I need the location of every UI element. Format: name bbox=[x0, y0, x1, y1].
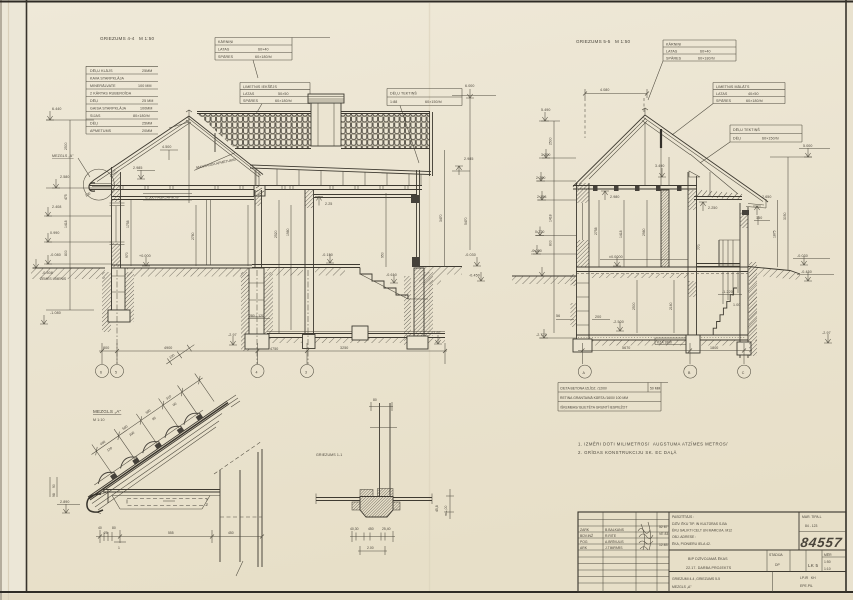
svg-text:2.980: 2.980 bbox=[610, 195, 620, 199]
svg-text:ĻIMETNIS MĀLĀTS: ĻIMETNIS MĀLĀTS bbox=[716, 85, 750, 89]
svg-text:M 1:10: M 1:10 bbox=[93, 418, 105, 422]
svg-text:2.250: 2.250 bbox=[708, 206, 718, 210]
svg-text:SPĀRES: SPĀRES bbox=[218, 55, 234, 59]
svg-text:4.500: 4.500 bbox=[162, 145, 172, 149]
svg-text:KĀRNIŅI: KĀRNIŅI bbox=[218, 40, 233, 44]
svg-text:-0.080: -0.080 bbox=[531, 249, 542, 253]
svg-text:450: 450 bbox=[368, 527, 374, 531]
svg-text:MEZGLS „A”: MEZGLS „A” bbox=[93, 409, 122, 414]
svg-text:MAR. TIPA.L: MAR. TIPA.L bbox=[802, 515, 822, 519]
svg-text:DP: DP bbox=[775, 563, 780, 567]
svg-text:800: 800 bbox=[103, 346, 109, 350]
svg-text:60×180/h/: 60×180/h/ bbox=[275, 99, 292, 103]
svg-text:60×180/h/: 60×180/h/ bbox=[698, 56, 715, 60]
svg-text:DZĪV. ĒKU TIP. IN KULTŪRAS S-B: DZĪV. ĒKU TIP. IN KULTŪRAS S-BA bbox=[672, 522, 728, 526]
svg-text:5.000: 5.000 bbox=[803, 144, 813, 148]
svg-text:84557: 84557 bbox=[800, 535, 844, 550]
svg-text:2.650: 2.650 bbox=[762, 195, 772, 199]
svg-text:SPĀRES: SPĀRES bbox=[716, 99, 732, 103]
svg-text:-0.450: -0.450 bbox=[469, 274, 480, 278]
svg-text:80×180/h/: 80×180/h/ bbox=[133, 114, 150, 118]
svg-text:2.580: 2.580 bbox=[60, 175, 70, 179]
svg-text:DĒĻU TEKTIŅŠ: DĒĻU TEKTIŅŠ bbox=[733, 127, 760, 132]
svg-text:BŪV.INŽ: BŪV.INŽ bbox=[580, 533, 593, 538]
svg-text:4900: 4900 bbox=[164, 346, 172, 350]
svg-text:SIJAS: SIJAS bbox=[90, 114, 101, 118]
svg-text:LATAS: LATAS bbox=[218, 48, 230, 52]
svg-text:-1.080: -1.080 bbox=[50, 311, 61, 315]
svg-text:60×150/h/: 60×150/h/ bbox=[762, 137, 779, 141]
svg-text:-2.97: -2.97 bbox=[432, 331, 441, 335]
svg-text:1980: 1980 bbox=[286, 228, 290, 236]
svg-text:20MM: 20MM bbox=[142, 129, 152, 133]
svg-text:2.00: 2.00 bbox=[367, 546, 374, 550]
svg-text:25: 25 bbox=[104, 531, 108, 535]
svg-text:2 KĀRTAS RUBEROĪDA: 2 KĀRTAS RUBEROĪDA bbox=[90, 92, 132, 96]
svg-text:555: 555 bbox=[168, 531, 174, 535]
svg-text:LK 5: LK 5 bbox=[808, 563, 818, 568]
svg-text:STADIJA: STADIJA bbox=[769, 553, 783, 557]
svg-text:100 MM: 100 MM bbox=[138, 84, 152, 88]
svg-text:2. GRĪDAS KONSTRUKCIJU SK. E: 2. GRĪDAS KONSTRUKCIJU SK. EC DAĻĀ bbox=[578, 450, 677, 455]
svg-text:DĒĻU TEKTIŅŠ: DĒĻU TEKTIŅŠ bbox=[390, 91, 417, 96]
svg-text:EPE.PIL: EPE.PIL bbox=[800, 584, 813, 588]
svg-text:OBJ. ADRESE :: OBJ. ADRESE : bbox=[672, 535, 696, 539]
svg-text:2520: 2520 bbox=[274, 230, 278, 238]
svg-text:2500: 2500 bbox=[549, 137, 553, 145]
svg-text:1:10: 1:10 bbox=[824, 567, 831, 571]
svg-text:3250: 3250 bbox=[340, 346, 348, 350]
svg-text:3.490: 3.490 bbox=[655, 164, 665, 168]
svg-text:80: 80 bbox=[373, 398, 377, 402]
svg-text:1. IZMĒRI DOTI MILIMETROS/ A: 1. IZMĒRI DOTI MILIMETROS/ AUGSTUMA ATZĪ… bbox=[578, 442, 728, 447]
svg-text:-0.450: -0.450 bbox=[801, 270, 812, 274]
svg-text:6: 6 bbox=[100, 370, 102, 374]
svg-text:2.890: 2.890 bbox=[60, 500, 70, 504]
svg-text:A.BRĪVULIS: A.BRĪVULIS bbox=[605, 540, 624, 544]
svg-text:2.408: 2.408 bbox=[52, 205, 62, 209]
svg-text:LATAS: LATAS bbox=[666, 49, 678, 53]
svg-text:MEZGLS „A”: MEZGLS „A” bbox=[672, 585, 691, 589]
svg-text:1: 1 bbox=[118, 546, 120, 550]
svg-text:m/1,00: m/1,00 bbox=[444, 506, 448, 516]
svg-text:-2.97: -2.97 bbox=[822, 331, 831, 335]
svg-text:LP.IR KH: LP.IR KH bbox=[800, 576, 816, 580]
svg-text:4: 4 bbox=[256, 370, 258, 374]
svg-text:KAVA STARPKLĀJA: KAVA STARPKLĀJA bbox=[90, 77, 125, 81]
svg-text:MINERĀLVATE: MINERĀLVATE bbox=[90, 84, 116, 88]
svg-text:2980: 2980 bbox=[642, 228, 646, 236]
svg-text:LATAS: LATAS bbox=[243, 92, 255, 96]
svg-text:DĒĻI: DĒĻI bbox=[90, 122, 98, 126]
svg-text:ZEMES LĪMENIS: ZEMES LĪMENIS bbox=[40, 277, 67, 281]
svg-text:800: 800 bbox=[549, 240, 553, 246]
svg-text:SPĀRES: SPĀRES bbox=[666, 56, 682, 60]
svg-text:ĻIMETNIS IEKŠĒJS: ĻIMETNIS IEKŠĒJS bbox=[243, 84, 277, 89]
svg-text:2500: 2500 bbox=[632, 302, 636, 310]
svg-text:MĒR: MĒR bbox=[824, 553, 832, 557]
svg-text:5470: 5470 bbox=[464, 217, 468, 225]
svg-text:280 J 120: 280 J 120 bbox=[249, 314, 264, 318]
svg-text:50×50: 50×50 bbox=[278, 92, 289, 96]
svg-text:-0.080: -0.080 bbox=[50, 253, 61, 257]
svg-text:-0.030: -0.030 bbox=[465, 253, 476, 257]
svg-text:40,30: 40,30 bbox=[350, 527, 359, 531]
svg-text:GRIEZUMS 1-1: GRIEZUMS 1-1 bbox=[316, 453, 342, 457]
svg-text:1800: 1800 bbox=[710, 346, 718, 350]
svg-text:60×180/h/: 60×180/h/ bbox=[746, 99, 763, 103]
svg-text:52 87: 52 87 bbox=[659, 525, 668, 529]
svg-text:200: 200 bbox=[595, 315, 601, 319]
svg-text:J.TIMPARS: J.TIMPARS bbox=[605, 546, 623, 550]
svg-text:ĒKU SALIKTI CELT UN MARCIJA. M: ĒKU SALIKTI CELT UN MARCIJA. M12 bbox=[672, 529, 732, 533]
svg-text:KZA 1800: KZA 1800 bbox=[657, 340, 672, 344]
svg-text:475: 475 bbox=[64, 194, 68, 200]
svg-text:5: 5 bbox=[115, 370, 117, 374]
svg-text:45,8: 45,8 bbox=[435, 505, 439, 512]
svg-text:GRIEZUMI 4-4 ,GRIEZUMS 5-5: GRIEZUMI 4-4 ,GRIEZUMS 5-5 bbox=[672, 577, 720, 581]
svg-text:1875: 1875 bbox=[773, 230, 777, 238]
svg-text:5670: 5670 bbox=[622, 346, 630, 350]
svg-text:60×40: 60×40 bbox=[700, 49, 711, 53]
svg-text:3: 3 bbox=[305, 370, 307, 374]
svg-text:50 MM: 50 MM bbox=[650, 387, 661, 391]
svg-text:ĒKA, PIONIERU IELA 42.: ĒKA, PIONIERU IELA 42. bbox=[672, 542, 711, 546]
svg-text:4750: 4750 bbox=[270, 347, 278, 351]
svg-text:1758: 1758 bbox=[126, 220, 130, 228]
svg-text:GRIEZUMS 4-4 M 1:50: GRIEZUMS 4-4 M 1:50 bbox=[100, 36, 154, 41]
svg-text:B.BALKANS: B.BALKANS bbox=[605, 528, 625, 532]
svg-text:450: 450 bbox=[228, 531, 234, 535]
svg-text:RETINA GRANTAINĀ KĀRTA /1600/: RETINA GRANTAINĀ KĀRTA /1600/ 100 MM bbox=[560, 396, 628, 400]
svg-text:R.RITE: R.RITE bbox=[605, 534, 617, 538]
svg-text:1418: 1418 bbox=[549, 214, 553, 222]
svg-text:56: 56 bbox=[556, 314, 560, 318]
svg-text:C: C bbox=[742, 371, 745, 375]
svg-text:6.440: 6.440 bbox=[52, 107, 62, 111]
svg-text:SPĀRES: SPĀRES bbox=[243, 99, 259, 103]
svg-text:GAISA STARPKLĀJA: GAISA STARPKLĀJA bbox=[90, 107, 127, 111]
svg-text:25,40: 25,40 bbox=[382, 527, 391, 531]
svg-text:ZARK: ZARK bbox=[580, 528, 590, 532]
svg-text:1418: 1418 bbox=[64, 220, 68, 228]
svg-text:60×150/h/: 60×150/h/ bbox=[425, 100, 442, 104]
svg-text:2.985: 2.985 bbox=[133, 166, 143, 170]
svg-text:1:50: 1:50 bbox=[824, 560, 831, 564]
svg-text:12.83: 12.83 bbox=[659, 543, 668, 547]
svg-text:/ŠĶEMBAS/ BLIETĒTA GRUNTĪ IESP: /ŠĶEMBAS/ BLIETĒTA GRUNTĪ IESPIEŽOT bbox=[560, 405, 627, 410]
svg-text:6.000: 6.000 bbox=[465, 84, 475, 88]
svg-text:VE 83: VE 83 bbox=[659, 532, 668, 536]
svg-text:MEZGLS „A”: MEZGLS „A” bbox=[52, 154, 74, 158]
svg-text:KĀRNIŅI: KĀRNIŅI bbox=[666, 42, 681, 46]
svg-text:2500: 2500 bbox=[64, 142, 68, 150]
svg-text:3050: 3050 bbox=[783, 212, 787, 220]
svg-text:84 - 123: 84 - 123 bbox=[805, 524, 818, 528]
svg-text:2.25: 2.25 bbox=[325, 202, 332, 206]
svg-text:LATAS: LATAS bbox=[716, 92, 728, 96]
svg-text:25MM: 25MM bbox=[142, 69, 152, 73]
svg-text:770: 770 bbox=[697, 244, 701, 250]
svg-text:0.990: 0.990 bbox=[50, 231, 60, 235]
svg-text:+0.000: +0.000 bbox=[139, 254, 151, 258]
svg-text:±0.0000: ±0.0000 bbox=[609, 255, 623, 259]
svg-text:DĒĻI: DĒĻI bbox=[90, 99, 98, 103]
svg-text:60×40: 60×40 bbox=[258, 48, 269, 52]
svg-text:BIP DZĪVOJAMĀ ĒKAS: BIP DZĪVOJAMĀ ĒKAS bbox=[688, 557, 728, 561]
svg-text:/2.500 PAGR./APM./h/: /2.500 PAGR./APM./h/ bbox=[145, 196, 179, 200]
svg-text:60×180/h/: 60×180/h/ bbox=[255, 55, 272, 59]
svg-text:-0.030: -0.030 bbox=[797, 254, 808, 258]
svg-text:DĒĻU KLĀJS: DĒĻU KLĀJS bbox=[90, 69, 113, 73]
svg-text:CIETA BETONA IZLĪDZ. /1200/: CIETA BETONA IZLĪDZ. /1200/ bbox=[560, 387, 607, 391]
svg-text:PASŪTĪTĀJS :: PASŪTĪTĀJS : bbox=[672, 515, 694, 519]
svg-text:POG: POG bbox=[580, 540, 588, 544]
svg-text:970: 970 bbox=[125, 252, 129, 258]
svg-text:800: 800 bbox=[64, 250, 68, 256]
svg-text:GRIEZUMS 5-5 M 1:50: GRIEZUMS 5-5 M 1:50 bbox=[576, 39, 630, 44]
svg-text:25MM: 25MM bbox=[142, 122, 152, 126]
svg-text:-0.508: -0.508 bbox=[42, 271, 53, 275]
svg-text:3470: 3470 bbox=[439, 214, 443, 222]
svg-text:2160: 2160 bbox=[669, 302, 673, 310]
svg-text:1.00: 1.00 bbox=[733, 303, 740, 307]
svg-text:ARK: ARK bbox=[580, 546, 588, 550]
svg-text:40×50: 40×50 bbox=[748, 92, 759, 96]
svg-text:2.985: 2.985 bbox=[464, 157, 474, 161]
svg-text:APMETUMS: APMETUMS bbox=[90, 129, 112, 133]
svg-text:DĒĻI: DĒĻI bbox=[733, 137, 741, 141]
svg-text:80: 80 bbox=[112, 526, 116, 530]
svg-text:90: 90 bbox=[52, 484, 56, 488]
svg-text:-2.500: -2.500 bbox=[613, 320, 624, 324]
svg-text:-2.97: -2.97 bbox=[228, 333, 237, 337]
svg-text:4.080: 4.080 bbox=[600, 88, 610, 92]
svg-text:-1.220: -1.220 bbox=[722, 290, 733, 294]
svg-text:1418: 1418 bbox=[619, 230, 623, 238]
svg-text:100MM: 100MM bbox=[140, 107, 152, 111]
svg-text:5.490: 5.490 bbox=[541, 108, 551, 112]
svg-text:-0.150: -0.150 bbox=[322, 253, 333, 257]
svg-text:40: 40 bbox=[98, 526, 102, 530]
svg-text:25 MM: 25 MM bbox=[142, 99, 153, 103]
svg-text:22.17. DARBA PROJEKTS: 22.17. DARBA PROJEKTS bbox=[686, 566, 732, 570]
svg-text:1:88: 1:88 bbox=[390, 100, 397, 104]
svg-text:150: 150 bbox=[756, 216, 762, 220]
svg-text:2780: 2780 bbox=[191, 232, 195, 240]
svg-text:98: 98 bbox=[52, 493, 56, 497]
svg-text:2758: 2758 bbox=[594, 227, 598, 235]
svg-text:950: 950 bbox=[381, 252, 385, 258]
svg-text:-0.610: -0.610 bbox=[386, 273, 397, 277]
